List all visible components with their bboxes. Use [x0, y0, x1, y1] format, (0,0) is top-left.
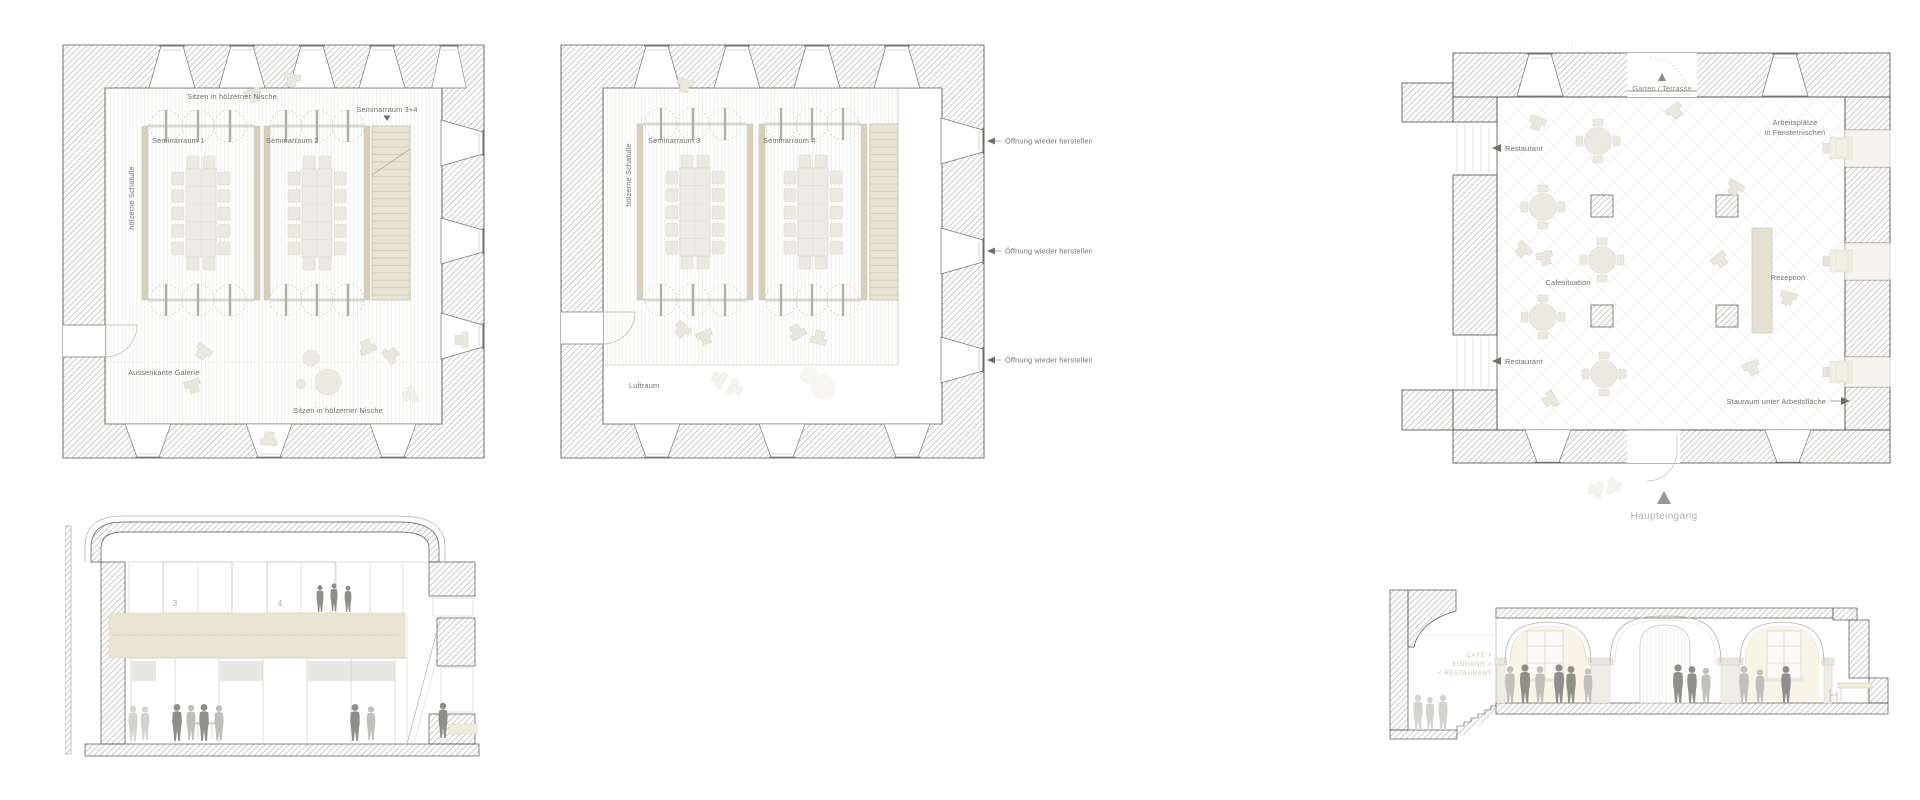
label-niche-top: Sitzen in hölzerner Nische	[187, 92, 277, 101]
label-panel-4: 4	[278, 599, 283, 608]
callout-oeffnung-3: Öffnung wieder herstellen	[987, 356, 1092, 365]
column	[1716, 305, 1738, 327]
person-silhouette	[128, 706, 137, 741]
lower-hall	[125, 658, 477, 744]
label-cafe: CAFÉ >	[1466, 650, 1492, 659]
person-silhouette	[1413, 695, 1422, 730]
person-silhouette	[367, 706, 376, 740]
label-schatulle: hölzerne Schatulle	[624, 143, 633, 207]
upper-gallery: 3 4	[125, 562, 429, 613]
section-seminar-hall: 3 4	[65, 498, 490, 780]
label-eingang: EINGANG >	[1453, 661, 1492, 668]
bench	[449, 724, 477, 734]
floor-plan-seminar-1-2: Sitzen in hölzerner Nische Seminarraum 3…	[60, 35, 490, 465]
callout-oeffnung-2: Öffnung wieder herstellen	[987, 247, 1092, 256]
arrow-left-icon	[987, 138, 995, 145]
stair	[870, 124, 898, 300]
label-oeffnung: Öffnung wieder herstellen	[1005, 137, 1092, 146]
person-silhouette	[141, 706, 150, 740]
label-restaurant: Restaurant	[1505, 357, 1543, 366]
floor-plan-seminar-3-4: Seminarraum 3 Seminarraum 4 hölzerne Sch…	[557, 35, 1092, 465]
label-room1: Seminarraum 1	[152, 136, 204, 145]
person-silhouette	[199, 704, 209, 741]
label-galerie: Aussenkante Galerie	[128, 368, 199, 377]
arrow-left-icon	[1492, 144, 1501, 152]
arrow-left-icon	[1492, 357, 1501, 365]
stair	[372, 126, 410, 300]
label-panel-3: 3	[173, 599, 178, 608]
main-entrance-door	[1627, 430, 1680, 481]
person-silhouette	[186, 705, 195, 740]
conference-table	[172, 156, 230, 270]
gallery-slab	[109, 613, 405, 658]
reception-desk	[1752, 228, 1772, 333]
label-stauraum: Stauraum unter Arbeitsfläche	[1726, 397, 1826, 406]
person-silhouette	[330, 583, 337, 611]
callout-oeffnung-1: Öffnung wieder herstellen	[987, 137, 1092, 146]
label-seminar34: Seminarraum 3+4	[356, 105, 417, 114]
restaurant-passage-top	[1457, 124, 1489, 173]
column	[1591, 195, 1613, 217]
label-rezeption: Rezeption	[1771, 273, 1806, 282]
label-niche-bottom: Sitzen in hölzerner Nische	[293, 406, 383, 415]
label-luftraum: Luftraum	[629, 381, 659, 390]
person-silhouette	[1701, 668, 1710, 703]
label-oeffnung: Öffnung wieder herstellen	[1005, 247, 1092, 256]
label-oeffnung: Öffnung wieder herstellen	[1005, 356, 1092, 365]
section-entrance-hall: CAFÉ > EINGANG > < RESTAURANT	[1388, 583, 1893, 763]
person-silhouette	[172, 704, 182, 741]
label-garten: Garten / Terrasse	[1632, 84, 1692, 93]
conference-table	[784, 155, 842, 269]
label-cafesituation: Cafesituation	[1545, 278, 1590, 287]
arrow-up-icon	[1657, 491, 1671, 504]
floor-plan-ground-cafe: Garten / Terrasse Arbeitsplätze in Fenst…	[1398, 38, 1898, 530]
main-entrance-label: Haupteingang	[1630, 491, 1697, 522]
label-arbeitsplaetze-1: Arbeitsplätze	[1773, 118, 1818, 127]
restaurant-passage-bottom	[1457, 337, 1489, 388]
column	[1716, 195, 1738, 217]
label-arbeitsplaetze-2: in Fensternischen	[1765, 128, 1826, 137]
label-haupteingang: Haupteingang	[1630, 511, 1697, 522]
person-silhouette	[350, 704, 360, 741]
column	[1591, 305, 1613, 327]
conference-table	[288, 156, 346, 270]
label-room2: Seminarraum 2	[266, 136, 318, 145]
wall-signage: CAFÉ > EINGANG > < RESTAURANT	[1438, 650, 1492, 677]
label-restaurant: Restaurant	[1505, 144, 1543, 153]
reception-counter	[1830, 683, 1872, 702]
main-door	[1640, 625, 1690, 703]
arrow-left-icon	[987, 357, 995, 364]
label-restaurant-sign: < RESTAURANT	[1438, 670, 1492, 677]
stair-ground	[1457, 703, 1496, 739]
arrow-left-icon	[987, 248, 995, 255]
person-silhouette	[1438, 695, 1447, 730]
label-schatulle: hölzerne Schatulle	[127, 166, 136, 230]
label-room4: Seminarraum 4	[763, 136, 815, 145]
person-silhouette	[317, 585, 324, 612]
person-silhouette	[345, 586, 352, 612]
presentation-board: Sitzen in hölzerner Nische Seminarraum 3…	[0, 0, 1920, 800]
person-silhouette	[1426, 697, 1434, 729]
conference-table	[666, 155, 724, 269]
label-room3: Seminarraum 3	[648, 136, 700, 145]
